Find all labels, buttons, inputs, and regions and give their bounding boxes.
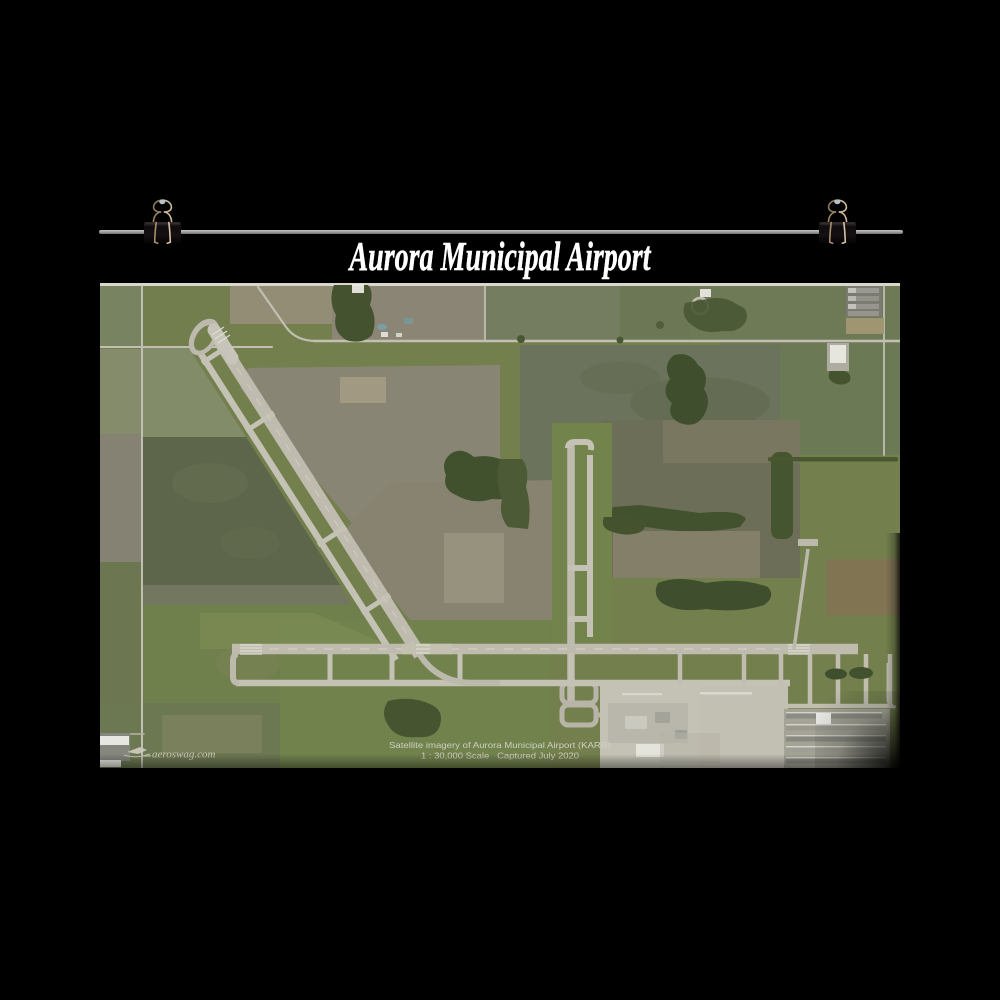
svg-text:Aurora Municipal Airport: Aurora Municipal Airport [347,233,651,279]
svg-text:Satellite imagery of Aurora Mu: Satellite imagery of Aurora Municipal Ai… [389,741,611,750]
